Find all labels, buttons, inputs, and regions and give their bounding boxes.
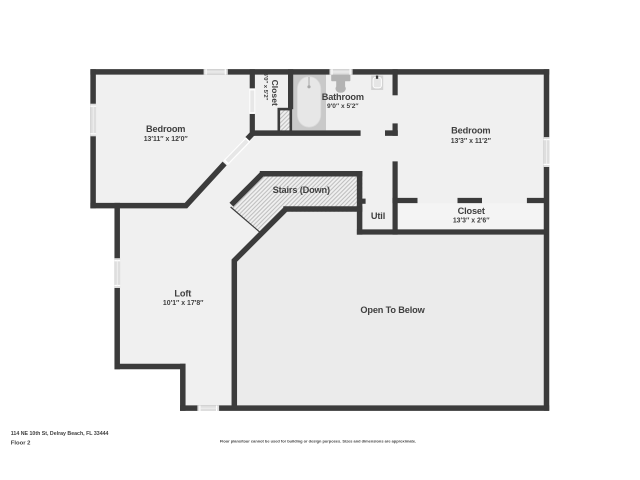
svg-text:Floor plans/tour cannot be use: Floor plans/tour cannot be used for buil… bbox=[220, 438, 416, 443]
svg-text:3′0″ x 5′2″: 3′0″ x 5′2″ bbox=[262, 73, 268, 101]
svg-text:Bedroom: Bedroom bbox=[451, 126, 490, 136]
svg-text:Closet: Closet bbox=[270, 80, 280, 106]
svg-text:13′3″ x 2′6″: 13′3″ x 2′6″ bbox=[453, 218, 490, 225]
svg-text:Bedroom: Bedroom bbox=[146, 124, 185, 134]
svg-text:13′11″ x 12′0″: 13′11″ x 12′0″ bbox=[144, 136, 189, 143]
svg-text:Open To Below: Open To Below bbox=[360, 305, 425, 315]
svg-text:114 NE 10th St, Delray Beach,: 114 NE 10th St, Delray Beach, FL 33444 bbox=[11, 431, 109, 437]
svg-text:Bathroom: Bathroom bbox=[322, 92, 364, 102]
svg-text:Stairs (Down): Stairs (Down) bbox=[273, 185, 330, 195]
svg-text:Closet: Closet bbox=[458, 206, 485, 216]
svg-text:13′3″ x 11′2″: 13′3″ x 11′2″ bbox=[451, 138, 492, 145]
svg-text:Util: Util bbox=[371, 211, 385, 221]
svg-text:Loft: Loft bbox=[174, 288, 191, 298]
svg-text:Floor 2: Floor 2 bbox=[11, 441, 31, 447]
svg-text:9′0″ x 5′2″: 9′0″ x 5′2″ bbox=[327, 103, 359, 110]
svg-text:10′1″ x 17′8″: 10′1″ x 17′8″ bbox=[163, 300, 204, 307]
